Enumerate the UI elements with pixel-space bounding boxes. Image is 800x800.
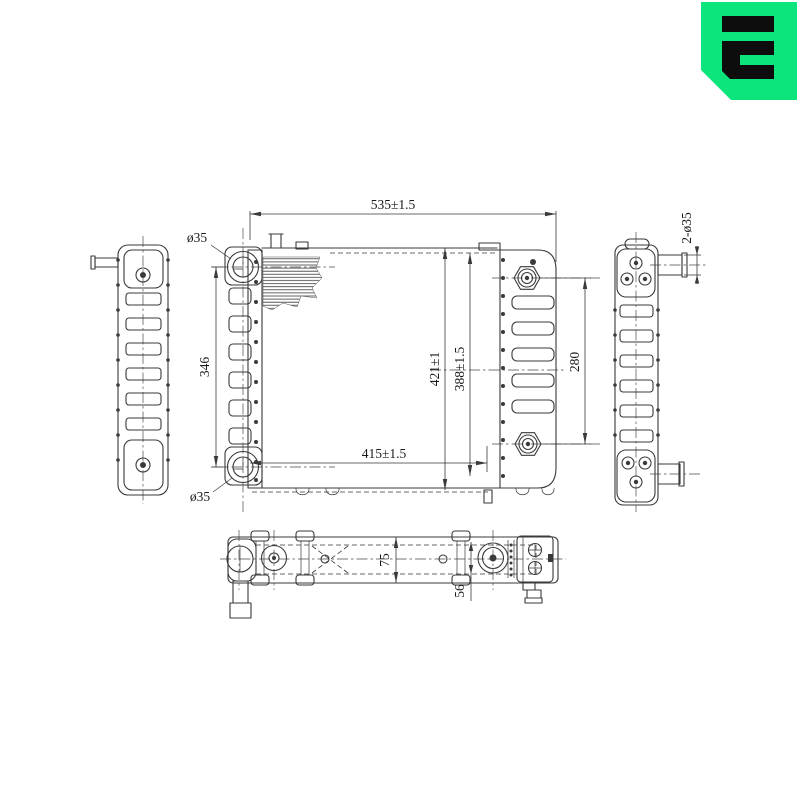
drawing-page: 535±1.5 415±1.5 421±1 388±1.5 346 280 ø3… [0, 0, 800, 800]
background [0, 0, 800, 800]
dim-bracket-height-label: 346 [197, 357, 212, 378]
dim-bottom-port-label: ø35 [190, 489, 211, 504]
dim-tab-offset-label: 56 [452, 584, 467, 598]
dim-top-port-label: ø35 [187, 230, 208, 245]
dim-core-height-label: 388±1.5 [452, 346, 467, 391]
dim-boss-spacing-label: 280 [567, 352, 582, 373]
dim-overall-height-label: 421±1 [427, 352, 442, 386]
technical-drawing: 535±1.5 415±1.5 421±1 388±1.5 346 280 ø3… [0, 0, 800, 800]
dim-mount-width-label: 415±1.5 [362, 446, 407, 461]
dim-overall-width-label: 535±1.5 [371, 197, 416, 212]
logo-e-glyph [722, 16, 774, 79]
dim-pipe-dia-label: 2-ø35 [679, 212, 694, 244]
dim-depth-label: 75 [377, 553, 392, 567]
